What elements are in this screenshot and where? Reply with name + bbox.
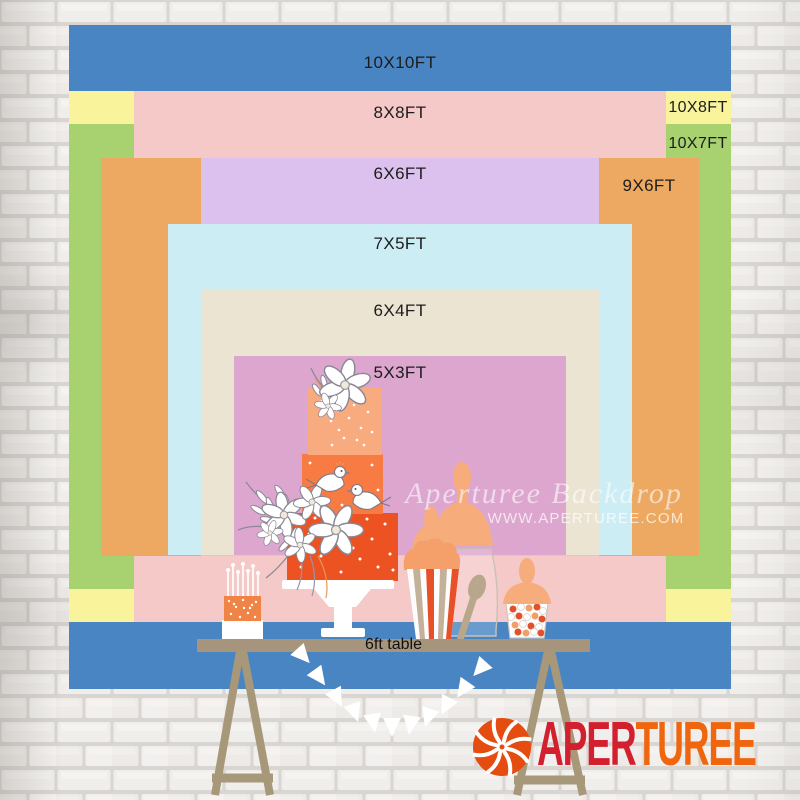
candy-cup-icon — [503, 558, 551, 638]
watermark-url: WWW.APERTUREE.COM — [476, 511, 696, 527]
bunting-garland — [290, 643, 492, 737]
logo-text-primary: APER — [537, 710, 636, 779]
popcorn-box-icon — [404, 538, 460, 639]
logo-wordmark: APERTUREE — [537, 712, 756, 778]
dessert-table-illustration — [0, 0, 800, 800]
candle-cake-icon — [222, 562, 263, 639]
aperturee-logo: APERTUREE — [471, 712, 791, 784]
aperture-shutter-icon — [471, 716, 533, 778]
table-size-label: 6ft table — [197, 636, 590, 653]
logo-text-secondary: TUREE — [636, 710, 756, 779]
watermark-script: Aperturee Backdrop — [398, 478, 690, 510]
backdrop-size-chart-image: 10X10FT 8X8FT 10X8FT 10X7FT 6X6FT 9X6FT … — [0, 0, 800, 800]
